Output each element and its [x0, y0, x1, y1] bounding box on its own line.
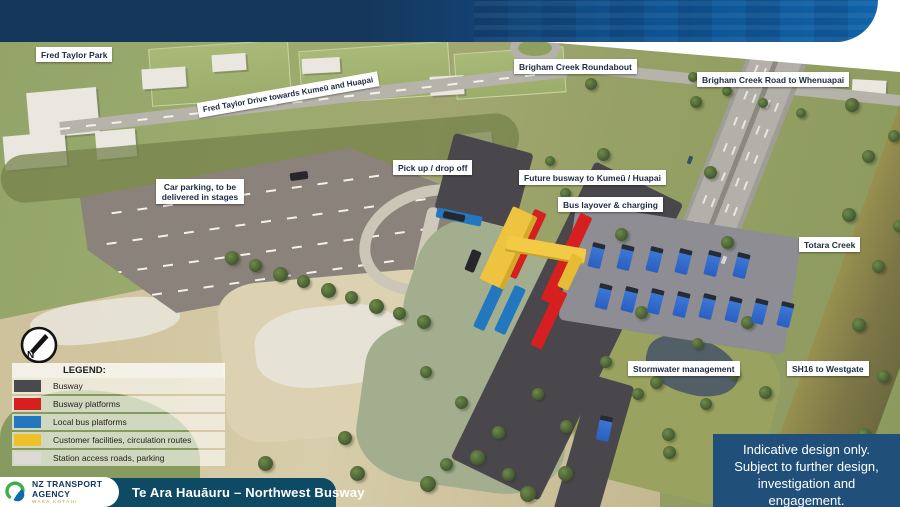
tree	[470, 450, 485, 465]
nzta-swirl-icon	[5, 480, 29, 504]
tree	[722, 86, 732, 96]
disclaimer-box: Indicative design only. Subject to furth…	[713, 434, 900, 507]
tree	[852, 318, 866, 332]
tree	[393, 307, 406, 320]
legend-swatch-busway	[14, 380, 41, 392]
tree	[663, 446, 676, 459]
tree	[249, 259, 262, 272]
header-banner	[0, 0, 878, 42]
label-totara-creek: Totara Creek	[799, 237, 860, 252]
label-brigham-roundabout: Brigham Creek Roundabout	[514, 59, 637, 74]
tree	[597, 148, 610, 161]
disclaimer-line: investigation and	[713, 475, 900, 492]
tree	[662, 428, 675, 441]
tree	[615, 228, 628, 241]
tree	[600, 356, 612, 368]
tree	[502, 468, 515, 481]
tree	[350, 466, 365, 481]
tree	[877, 370, 890, 383]
tree	[862, 150, 875, 163]
tree	[721, 236, 734, 249]
building	[141, 66, 186, 89]
legend-swatch-station-access	[14, 452, 41, 464]
tree	[650, 376, 663, 389]
label-fred-taylor-park: Fred Taylor Park	[36, 47, 112, 62]
legend-swatch-busway-platforms	[14, 398, 41, 410]
tree	[558, 466, 573, 481]
tree	[845, 98, 859, 112]
nzta-logo: NZ TRANSPORT AGENCY WAKA KOTAHI	[0, 477, 119, 507]
tree	[420, 476, 436, 492]
tree	[492, 426, 505, 439]
building	[302, 57, 341, 74]
tree	[700, 398, 712, 410]
tree	[345, 291, 358, 304]
label-future-busway: Future busway to Kumeū / Huapai	[519, 170, 666, 185]
legend-heading: LEGEND:	[12, 363, 225, 378]
tree	[585, 78, 597, 90]
tree	[225, 251, 239, 265]
legend-item-local-bus: Local bus platforms	[12, 414, 225, 430]
tree	[520, 486, 536, 502]
car	[687, 156, 694, 165]
legend-item-station-access: Station access roads, parking	[12, 450, 225, 466]
tree	[796, 108, 806, 118]
tree	[632, 388, 644, 400]
tree	[455, 396, 468, 409]
koru-pattern	[474, 0, 878, 42]
tree	[417, 315, 431, 329]
tree	[872, 260, 885, 273]
tree	[545, 156, 555, 166]
tree	[704, 166, 717, 179]
label-sh16: SH16 to Westgate	[787, 361, 869, 376]
compass-icon: N	[19, 325, 59, 365]
building	[211, 53, 246, 72]
tree	[690, 96, 702, 108]
tree	[842, 208, 856, 222]
legend-swatch-customer-facilities	[14, 434, 41, 446]
label-car-parking: Car parking, to be delivered in stages	[156, 179, 244, 204]
program-name: Te Ara Hauāuru – Northwest Busway	[132, 485, 365, 500]
legend-item-busway: Busway	[12, 378, 225, 394]
tree	[258, 456, 273, 471]
tree	[420, 366, 432, 378]
tree	[532, 388, 544, 400]
disclaimer-line: engagement.	[713, 492, 900, 507]
legend-item-busway-platforms: Busway platforms	[12, 396, 225, 412]
tree	[692, 338, 703, 349]
label-bus-layover: Bus layover & charging	[558, 197, 663, 212]
tree	[369, 299, 384, 314]
disclaimer-line: Subject to further design,	[713, 458, 900, 475]
tree	[888, 130, 900, 142]
legend-swatch-local-bus	[14, 416, 41, 428]
tree	[759, 386, 772, 399]
legend: LEGEND: Busway Busway platforms Local bu…	[12, 363, 225, 468]
label-pick-up-drop-off: Pick up / drop off	[393, 160, 472, 175]
label-stormwater: Stormwater management	[628, 361, 740, 376]
tree	[893, 220, 900, 232]
tree	[297, 275, 310, 288]
tree	[338, 431, 352, 445]
compass-north-letter: N	[27, 350, 34, 361]
label-brigham-road: Brigham Creek Road to Whenuapai	[697, 72, 849, 87]
tree	[560, 420, 573, 433]
legend-item-customer-facilities: Customer facilities, circulation routes	[12, 432, 225, 448]
tree	[273, 267, 288, 282]
nzta-logo-text: NZ TRANSPORT AGENCY WAKA KOTAHI	[32, 480, 102, 504]
tree	[321, 283, 336, 298]
tree	[758, 98, 768, 108]
disclaimer-line: Indicative design only.	[713, 441, 900, 458]
slide: Brigham Creek station – indicative desig…	[0, 0, 900, 507]
tree	[440, 458, 453, 471]
